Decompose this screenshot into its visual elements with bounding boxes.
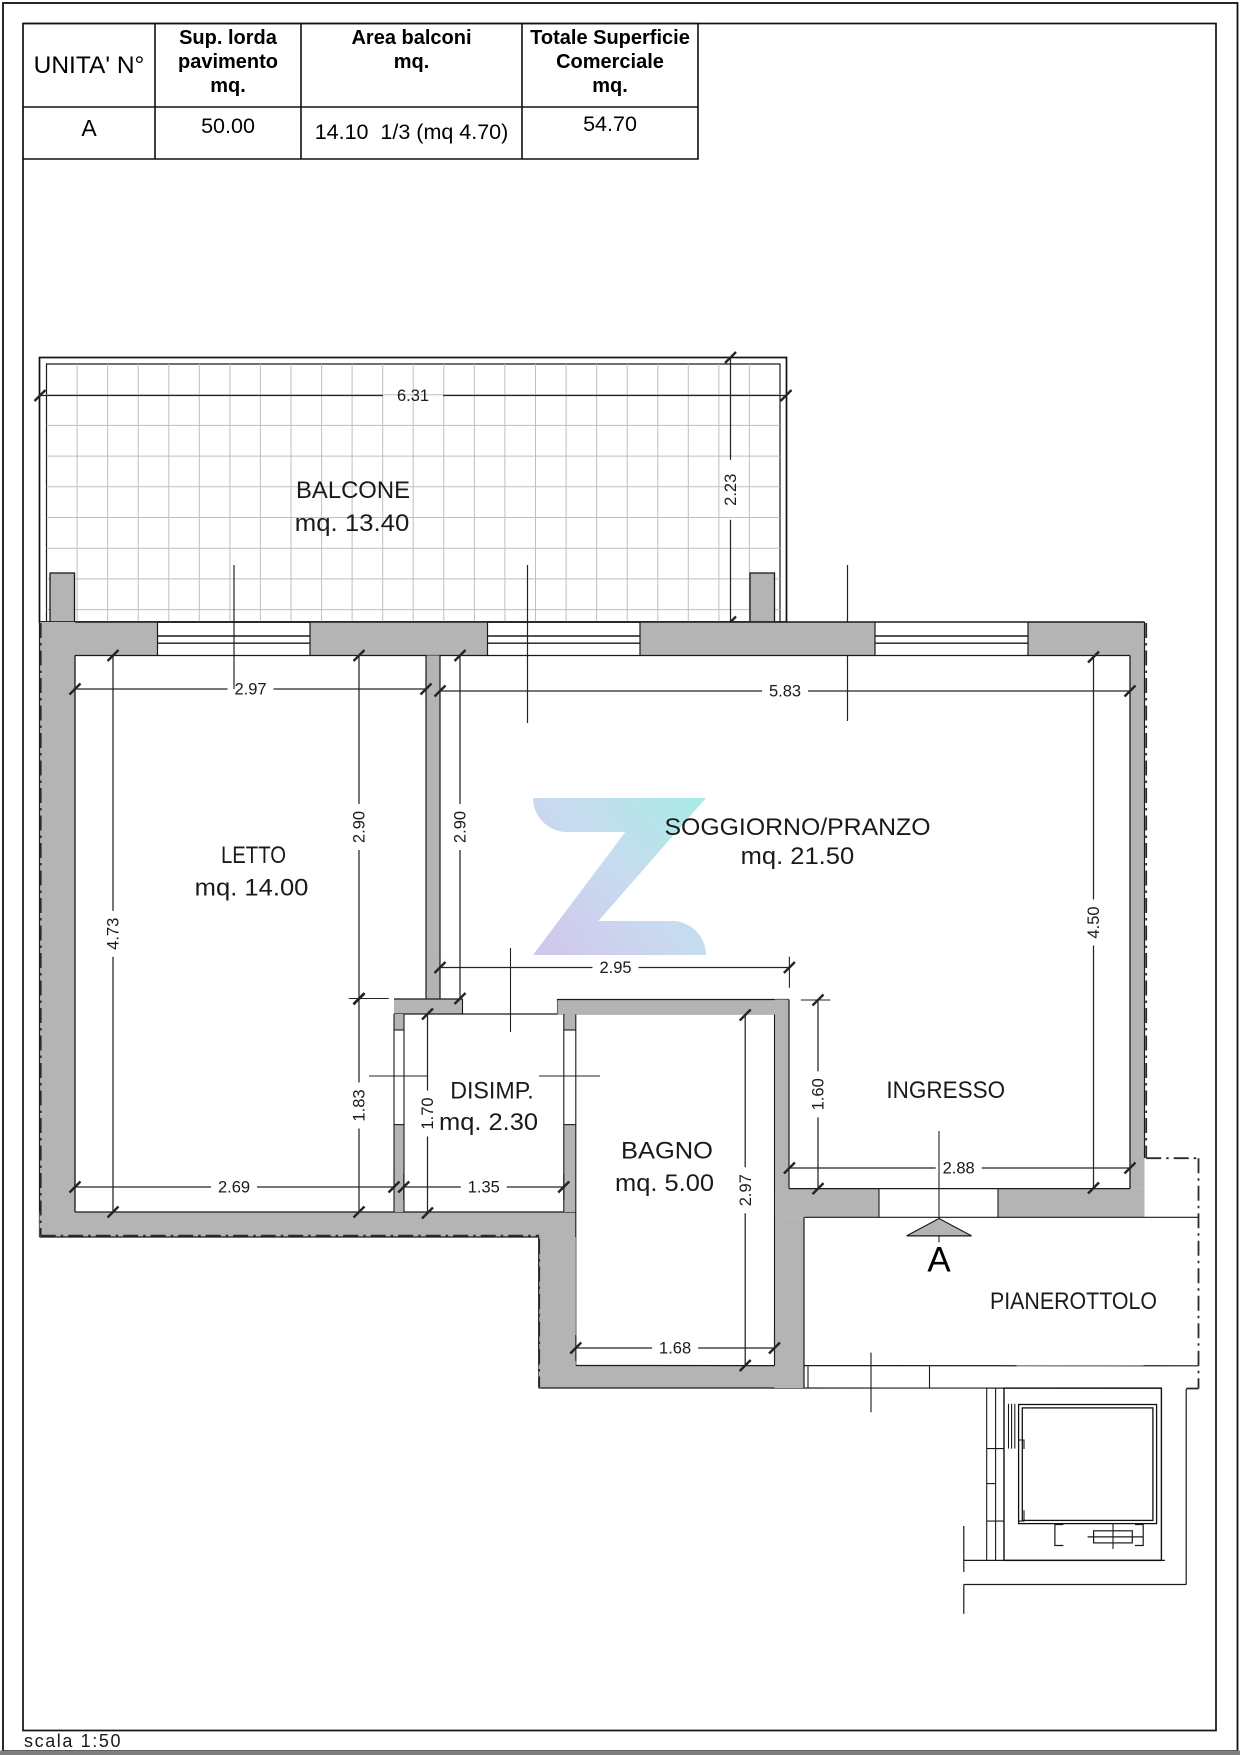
svg-text:UNITA' N°: UNITA' N° [34,52,145,79]
svg-text:2.69: 2.69 [218,1179,250,1197]
svg-text:2.97: 2.97 [234,681,266,699]
svg-text:2.23: 2.23 [722,474,740,506]
svg-text:mq. 13.40: mq. 13.40 [295,510,410,537]
svg-text:2.90: 2.90 [351,811,369,843]
svg-text:1.35: 1.35 [468,1179,500,1197]
svg-text:DISIMP.: DISIMP. [450,1077,534,1104]
svg-text:Totale Superficie: Totale Superficie [530,27,690,49]
svg-text:4.73: 4.73 [105,918,123,950]
svg-text:2.90: 2.90 [452,811,470,843]
svg-text:mq. 2.30: mq. 2.30 [439,1109,538,1136]
svg-text:scala 1:50: scala 1:50 [24,1731,122,1751]
svg-text:1.68: 1.68 [659,1340,691,1358]
svg-text:BALCONE: BALCONE [296,477,410,504]
svg-text:2.97: 2.97 [737,1174,755,1206]
svg-text:1.70: 1.70 [419,1097,437,1129]
svg-text:LETTO: LETTO [221,842,286,869]
svg-text:50.00: 50.00 [201,114,255,138]
svg-text:mq.: mq. [592,75,628,97]
svg-text:A: A [81,115,97,141]
svg-text:mq. 14.00: mq. 14.00 [195,875,309,902]
svg-text:mq.: mq. [210,75,246,97]
svg-text:A: A [927,1240,951,1279]
svg-text:SOGGIORNO/PRANZO: SOGGIORNO/PRANZO [665,814,931,841]
svg-text:2.88: 2.88 [943,1160,975,1178]
svg-text:6.31: 6.31 [397,387,429,405]
svg-text:pavimento: pavimento [178,51,278,73]
svg-text:2.95: 2.95 [599,959,631,977]
svg-text:4.50: 4.50 [1085,906,1103,938]
svg-text:1.60: 1.60 [810,1078,828,1110]
svg-text:mq. 5.00: mq. 5.00 [615,1170,714,1197]
svg-text:Area balconi: Area balconi [351,27,471,49]
svg-text:Comerciale: Comerciale [556,51,664,73]
svg-text:Sup. lorda: Sup. lorda [179,27,278,49]
svg-text:PIANEROTTOLO: PIANEROTTOLO [990,1288,1157,1315]
svg-text:14.10 1/3 (mq 4.70): 14.10 1/3 (mq 4.70) [315,120,509,144]
svg-text:BAGNO: BAGNO [621,1138,713,1165]
svg-text:mq. 21.50: mq. 21.50 [741,843,855,870]
svg-text:54.70: 54.70 [583,112,637,136]
svg-text:1.83: 1.83 [351,1089,369,1121]
svg-text:5.83: 5.83 [769,683,801,701]
svg-text:INGRESSO: INGRESSO [886,1077,1005,1104]
svg-text:mq.: mq. [394,51,430,73]
